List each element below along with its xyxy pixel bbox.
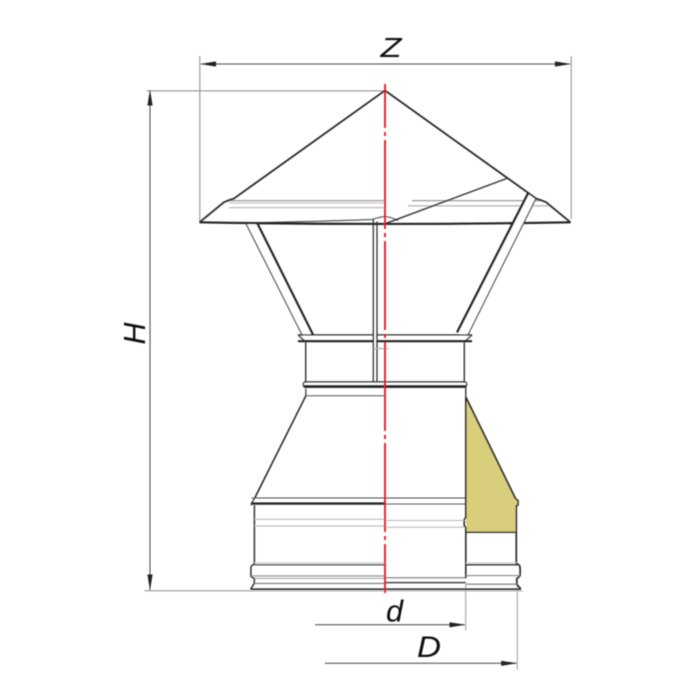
- svg-text:d: d: [386, 594, 405, 629]
- svg-text:H: H: [118, 322, 152, 345]
- svg-text:Z: Z: [379, 32, 402, 63]
- svg-text:D: D: [417, 631, 441, 664]
